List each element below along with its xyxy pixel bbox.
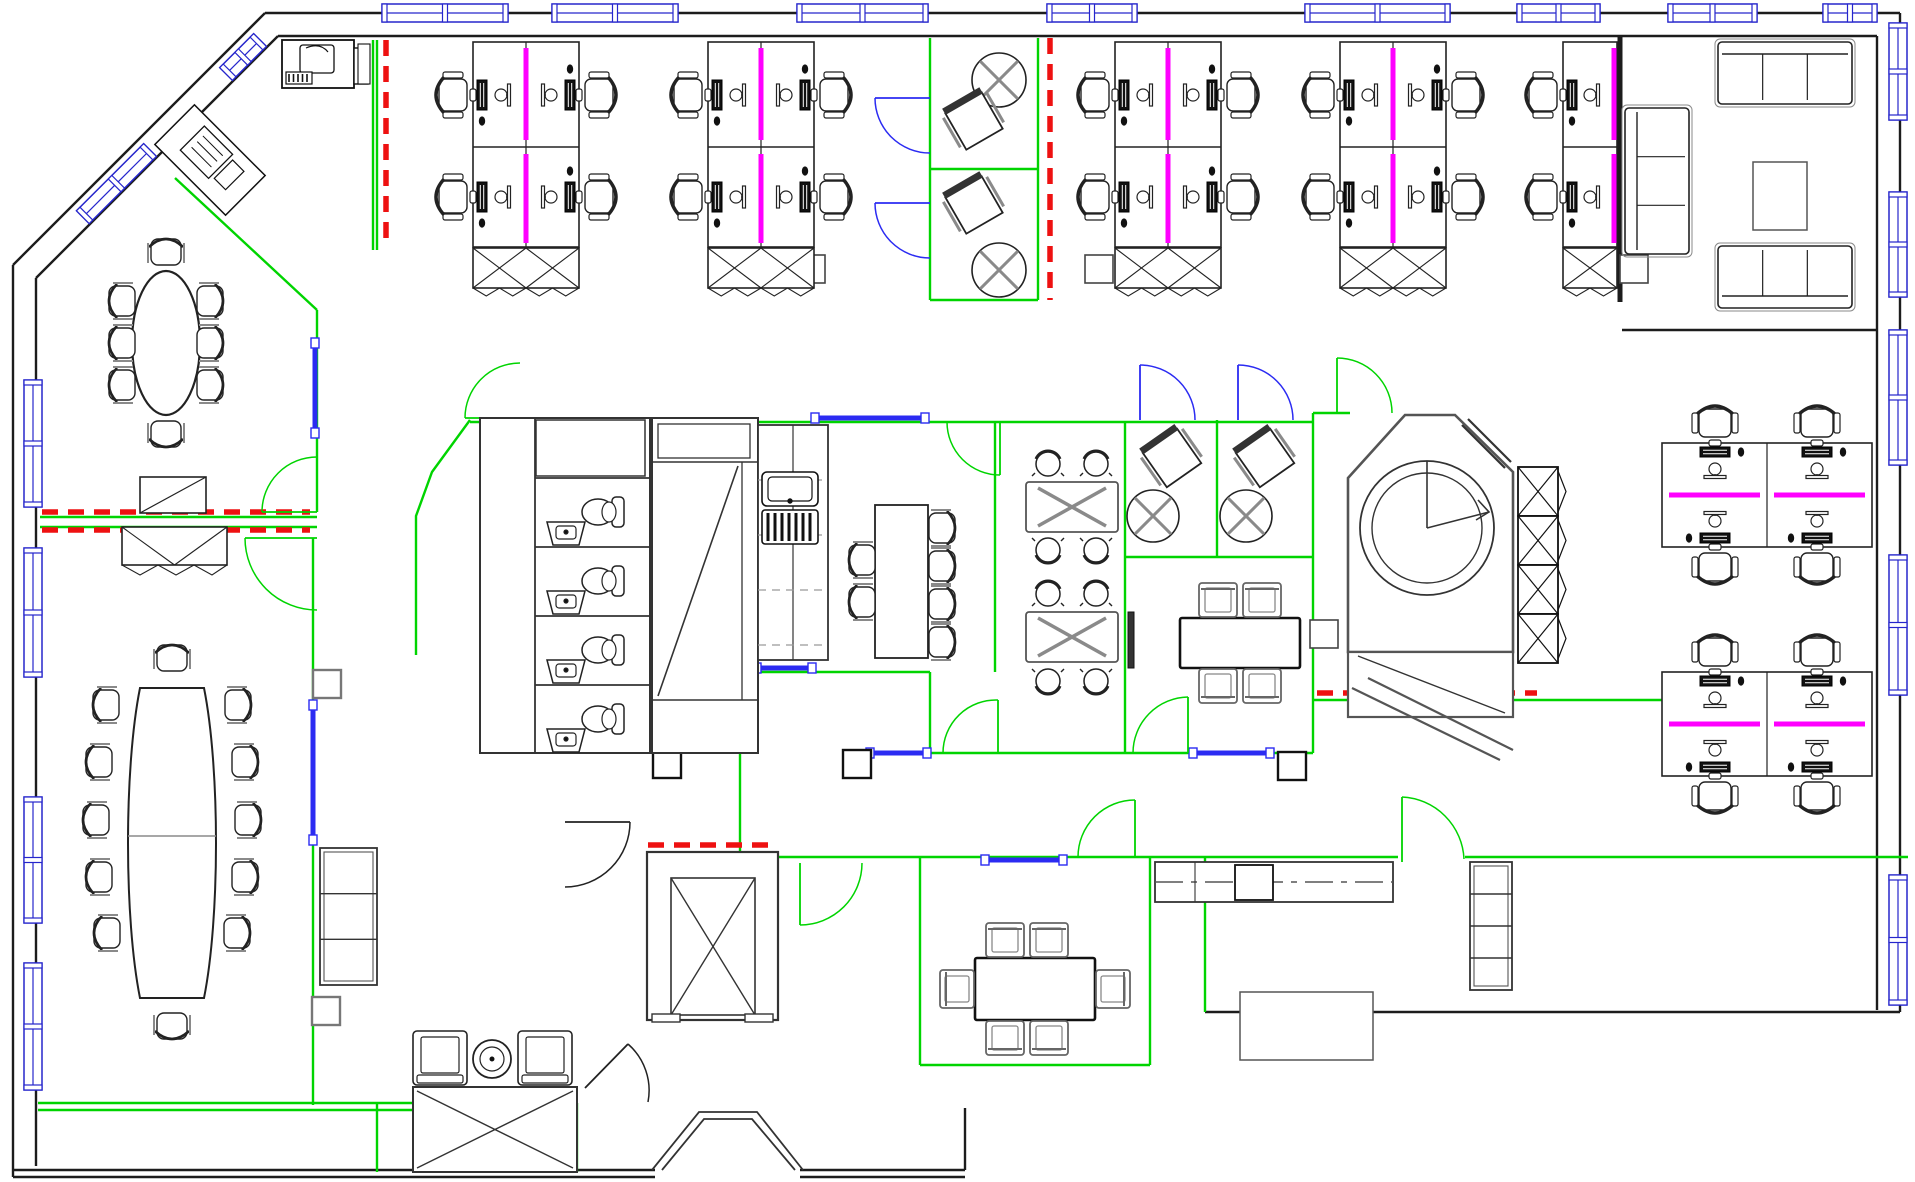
window-icon <box>797 4 928 22</box>
toilet-icon <box>582 497 624 527</box>
door-swing <box>585 1044 649 1102</box>
sofa <box>1622 105 1692 257</box>
task-chair <box>671 174 711 220</box>
kitchenette <box>758 425 828 660</box>
task-chair <box>671 72 711 118</box>
mouse-icon <box>1121 218 1127 227</box>
conference-chair <box>235 802 261 838</box>
keyboard-icon <box>1432 80 1442 110</box>
sink-icon <box>547 729 585 752</box>
conference-chair <box>94 915 120 951</box>
cafe-chair <box>1032 669 1064 694</box>
elevator <box>647 852 778 1022</box>
keyboard-icon <box>565 182 575 212</box>
task-chair <box>1526 72 1566 118</box>
service-shaft <box>652 418 758 753</box>
floor-plan <box>0 0 1915 1182</box>
door-swing <box>465 363 520 418</box>
task-chair <box>1303 174 1343 220</box>
mouse-icon <box>1209 64 1215 73</box>
armchair <box>518 1031 572 1085</box>
task-chair <box>811 174 851 220</box>
window-icon <box>220 34 267 81</box>
task-chair <box>1218 72 1258 118</box>
lockers <box>1518 467 1566 663</box>
door-swing <box>1133 697 1188 753</box>
cafe-area <box>1026 451 1118 694</box>
guest-chair <box>1030 1021 1068 1055</box>
conference-chair <box>109 283 135 319</box>
keyboard-icon <box>1802 676 1832 686</box>
conference-chair <box>83 802 109 838</box>
keyboard-icon <box>800 80 810 110</box>
mouse-icon <box>802 64 808 73</box>
cafe-chair <box>1032 451 1064 476</box>
sink-icon <box>547 522 585 545</box>
lounge <box>1622 39 1855 311</box>
window-icon <box>1889 23 1907 120</box>
window-icon <box>1668 4 1757 22</box>
conference-chair <box>148 421 184 447</box>
conference-chair <box>929 586 955 622</box>
mouse-icon <box>1840 676 1846 685</box>
column <box>1620 255 1648 283</box>
task-chair <box>1692 635 1738 675</box>
mouse-icon <box>714 116 720 125</box>
task-chair <box>811 72 851 118</box>
lobby-vestibule <box>652 1112 803 1170</box>
window-icon <box>1823 4 1877 22</box>
window-icon <box>552 4 678 22</box>
mouse-icon <box>567 64 573 73</box>
mouse-icon <box>479 116 485 125</box>
keyboard-icon <box>1802 762 1832 772</box>
conference-chair <box>224 915 250 951</box>
cafe-chair <box>1080 581 1112 606</box>
print-station <box>155 105 265 215</box>
desk-cluster <box>1662 635 1872 813</box>
keyboard-icon <box>1432 182 1442 212</box>
conference-room-boat <box>83 527 261 1039</box>
window-icon <box>1305 4 1450 22</box>
guest-chair <box>986 923 1024 957</box>
conference-chair <box>86 744 112 780</box>
mouse-icon <box>1434 166 1440 175</box>
mouse-icon <box>1788 533 1794 542</box>
cafe-chair <box>1080 451 1112 476</box>
keyboard-icon <box>1344 80 1354 110</box>
column <box>653 750 681 778</box>
guest-chair <box>986 1021 1024 1055</box>
meeting-room <box>1128 583 1300 703</box>
conference-chair <box>154 1013 190 1039</box>
mouse-icon <box>714 218 720 227</box>
toilet-icon <box>582 635 624 665</box>
door-swing <box>1140 365 1195 420</box>
mouse-icon <box>1209 166 1215 175</box>
keyboard-icon <box>1700 676 1730 686</box>
keyboard-icon <box>800 182 810 212</box>
door-swing <box>947 422 1000 475</box>
task-chair <box>436 72 476 118</box>
task-chair <box>1303 72 1343 118</box>
task-chair <box>1692 406 1738 446</box>
mouse-icon <box>1346 218 1352 227</box>
conference-chair <box>197 283 223 319</box>
workstations-right <box>1662 406 1872 813</box>
toilet-icon <box>582 704 624 734</box>
conference-chair <box>148 239 184 265</box>
keyboard-icon <box>1119 80 1129 110</box>
guest-chair <box>940 970 974 1008</box>
keyboard-icon <box>1700 762 1730 772</box>
bookshelf <box>320 848 377 985</box>
task-chair <box>576 174 616 220</box>
mouse-icon <box>1738 447 1744 456</box>
conference-chair <box>232 859 258 895</box>
window-icon <box>24 380 42 507</box>
door-swing <box>1337 358 1392 413</box>
task-chair <box>1218 174 1258 220</box>
mouse-icon <box>1840 447 1846 456</box>
guest-chair <box>1243 583 1281 617</box>
armchair-nook <box>413 1031 572 1085</box>
window-icon <box>1047 4 1137 22</box>
tilted-desk-chair <box>1137 422 1205 489</box>
mouse-icon <box>1569 116 1575 125</box>
tilted-desk-chair <box>939 170 1006 236</box>
keyboard-icon <box>1700 447 1730 457</box>
mouse-icon <box>1434 64 1440 73</box>
task-chair <box>436 174 476 220</box>
window-icon <box>76 144 156 224</box>
task-chair <box>1692 544 1738 584</box>
door-swing <box>1238 365 1293 420</box>
keyboard-icon <box>1207 80 1217 110</box>
kitchen-counter <box>1155 862 1393 902</box>
cafe-table <box>1026 581 1118 694</box>
mouse-icon <box>1346 116 1352 125</box>
armchair <box>413 1031 467 1085</box>
round-table <box>1127 490 1179 542</box>
keyboard-icon <box>1802 533 1832 543</box>
toilet-icon <box>582 566 624 596</box>
cafe-chair <box>1080 538 1112 563</box>
task-chair <box>1078 174 1118 220</box>
door-swing <box>565 822 630 887</box>
keyboard-icon <box>1567 182 1577 212</box>
guest-chair <box>1096 970 1130 1008</box>
mouse-icon <box>802 166 808 175</box>
sink-icon <box>547 591 585 614</box>
dining-table <box>849 505 955 660</box>
window-icon <box>24 963 42 1090</box>
guest-chair <box>1199 583 1237 617</box>
desk-cluster <box>436 42 616 296</box>
bookshelf <box>1470 862 1512 990</box>
task-chair <box>1794 635 1840 675</box>
conference-chair <box>197 367 223 403</box>
cafe-chair <box>1080 669 1112 694</box>
desk-cluster <box>1303 42 1483 296</box>
conference-chair <box>849 542 875 578</box>
window-icon <box>1889 875 1907 1005</box>
task-chair <box>1794 544 1840 584</box>
column <box>313 670 341 698</box>
phone-booth <box>1220 422 1298 542</box>
mouse-icon <box>567 166 573 175</box>
desk-cluster <box>1662 406 1872 584</box>
column <box>843 750 871 778</box>
conference-chair <box>929 624 955 660</box>
phone-booth <box>939 170 1026 297</box>
mouse-icon <box>1569 218 1575 227</box>
door-swing <box>800 863 862 925</box>
keyboard-icon <box>565 80 575 110</box>
conference-chair <box>849 584 875 620</box>
keyboard-icon <box>477 80 487 110</box>
sink-icon <box>547 660 585 683</box>
door-swing <box>1402 797 1464 862</box>
guest-chair <box>1199 669 1237 703</box>
phone-booth <box>939 53 1026 152</box>
window-icon <box>1889 555 1907 695</box>
mouse-icon <box>1686 533 1692 542</box>
conference-chair <box>154 645 190 671</box>
rugs <box>1240 992 1373 1060</box>
desk-cluster <box>1526 42 1617 296</box>
window-icon <box>1889 330 1907 465</box>
column <box>1278 752 1306 780</box>
keyboard-icon <box>712 182 722 212</box>
column <box>312 997 340 1025</box>
keyboard-icon <box>1802 447 1832 457</box>
door-swing <box>875 203 930 258</box>
window-icon <box>382 4 508 22</box>
mouse-icon <box>1788 762 1794 771</box>
sofa <box>1715 243 1855 311</box>
conference-chair <box>929 510 955 546</box>
meeting-room <box>940 923 1130 1055</box>
task-chair <box>576 72 616 118</box>
mouse-icon <box>1686 762 1692 771</box>
column <box>1085 255 1113 283</box>
keyboard-icon <box>1344 182 1354 212</box>
conference-chair <box>109 325 135 361</box>
restrooms <box>480 418 650 753</box>
conference-chair <box>86 859 112 895</box>
door-swing <box>262 457 317 512</box>
conference-room-oval <box>109 239 223 513</box>
round-table <box>972 243 1026 297</box>
conference-chair <box>93 687 119 723</box>
keyboard-icon <box>1567 80 1577 110</box>
stair-shaft <box>413 1087 577 1172</box>
conference-chair <box>109 367 135 403</box>
guest-chair <box>1030 923 1068 957</box>
door-swing <box>943 700 998 753</box>
mouse-icon <box>1738 676 1744 685</box>
cafe-chair <box>1032 581 1064 606</box>
conference-chair <box>232 744 258 780</box>
door-swing <box>1078 800 1135 857</box>
conference-chair <box>197 325 223 361</box>
conference-chair <box>225 687 251 723</box>
window-icon <box>24 797 42 923</box>
task-chair <box>1692 773 1738 813</box>
window-icon <box>1517 4 1600 22</box>
column <box>1310 620 1338 648</box>
sofa <box>1715 39 1855 107</box>
task-chair <box>1443 72 1483 118</box>
window-icon <box>24 548 42 677</box>
conference-chair <box>929 548 955 584</box>
floor-plan-canvas <box>0 0 1915 1182</box>
mouse-icon <box>1121 116 1127 125</box>
phone-booth <box>1127 422 1205 542</box>
task-chair <box>1078 72 1118 118</box>
task-chair <box>1526 174 1566 220</box>
spiral-stair <box>1348 415 1513 760</box>
window-icon <box>1889 192 1907 297</box>
mouse-icon <box>479 218 485 227</box>
door-swing <box>245 538 317 610</box>
keyboard-icon <box>712 80 722 110</box>
task-chair <box>1794 406 1840 446</box>
guest-chair <box>1243 669 1281 703</box>
keyboard-icon <box>1207 182 1217 212</box>
task-chair <box>1794 773 1840 813</box>
keyboard-icon <box>1119 182 1129 212</box>
cafe-table <box>1026 451 1118 563</box>
door-swing <box>875 98 930 153</box>
keyboard-icon <box>477 182 487 212</box>
cafe-chair <box>1032 538 1064 563</box>
tilted-desk-chair <box>1230 422 1298 489</box>
task-chair <box>1443 174 1483 220</box>
round-table <box>1220 490 1272 542</box>
keyboard-icon <box>1700 533 1730 543</box>
